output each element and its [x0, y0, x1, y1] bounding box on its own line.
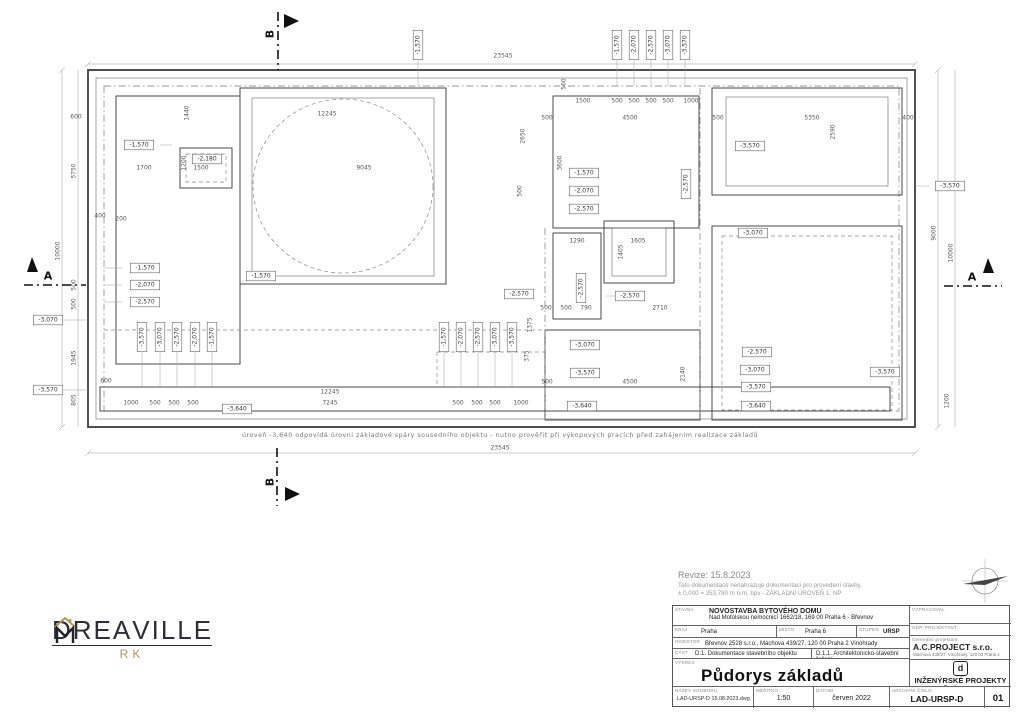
title-block-archivni-cislo: ARCHIVNÍ ČÍSLO LAD-URSP-D	[889, 686, 984, 708]
elevation-label: -3,570	[137, 322, 147, 351]
svg-text:-2,180: -2,180	[197, 156, 217, 163]
logo-text-right: VILLE	[132, 617, 213, 643]
nazev-souboru-label: NÁZEV SOUBORU	[675, 688, 717, 693]
section-label-b: B	[264, 30, 277, 38]
svg-text:-2,070: -2,070	[192, 327, 199, 347]
svg-text:1375: 1375	[527, 317, 534, 332]
title-block-nazev-souboru: NÁZEV SOUBORU LAD-URSP-D 15.08.2023.dwg	[673, 686, 753, 708]
svg-text:-3,070: -3,070	[745, 367, 765, 374]
elevation-label: -3,570	[570, 368, 599, 378]
svg-text:3600: 3600	[557, 155, 564, 170]
svg-text:500: 500	[611, 98, 623, 105]
eng-company-logo: d	[953, 661, 968, 676]
dimension-label: 200	[115, 216, 127, 223]
dimension-label: 500	[645, 98, 657, 105]
svg-text:-3,640: -3,640	[746, 403, 766, 410]
dimension-label: 790	[580, 305, 592, 312]
svg-text:500: 500	[489, 400, 501, 407]
svg-text:-3,570: -3,570	[575, 370, 595, 377]
svg-text:4500: 4500	[622, 379, 637, 386]
svg-text:400: 400	[902, 115, 914, 122]
section-marker-b-bottom: B	[264, 448, 301, 506]
elevation-label: -3,640	[567, 401, 596, 411]
section-label-b: B	[264, 478, 277, 486]
gen-projektant-name: A.C.PROJECT s.r.o.	[913, 642, 1011, 652]
svg-text:500: 500	[471, 400, 483, 407]
svg-text:-3,070: -3,070	[575, 342, 595, 349]
svg-text:9045: 9045	[356, 165, 371, 172]
dimension-label: 600	[70, 114, 82, 121]
logo-divider	[52, 645, 212, 646]
dimension-label: 500	[541, 379, 553, 386]
svg-text:-2,570: -2,570	[683, 174, 690, 194]
svg-text:1500: 1500	[193, 165, 208, 172]
svg-text:-1,570: -1,570	[574, 170, 594, 177]
stavba-label: STAVBA	[675, 607, 694, 612]
svg-text:1945: 1945	[71, 350, 78, 365]
svg-text:600: 600	[70, 114, 82, 121]
svg-text:2650: 2650	[520, 128, 527, 143]
svg-text:-1,570: -1,570	[209, 327, 216, 347]
vypracoval-label: VYPRACOVAL	[912, 607, 945, 612]
svg-text:23545: 23545	[490, 445, 509, 452]
cast-label: ČÁST	[675, 650, 688, 655]
dimension-label: 9045	[356, 165, 371, 172]
elevation-label: -2,570	[681, 169, 691, 198]
title-block: STAVBA NOVOSTAVBA BYTOVÉHO DOMU Nad Moto…	[672, 605, 1010, 707]
svg-text:12245: 12245	[320, 389, 339, 396]
stupen-label: STUPEŇ	[859, 627, 879, 632]
elevation-label: -3,640	[222, 404, 251, 414]
dimension-label: 1000	[683, 98, 698, 105]
svg-text:1000: 1000	[683, 98, 698, 105]
svg-text:-3,070: -3,070	[492, 327, 499, 347]
svg-text:500: 500	[540, 305, 552, 312]
title-block-vypracoval: VYPRACOVAL	[909, 606, 1011, 623]
elevation-label: -1,570	[246, 271, 275, 281]
svg-text:2140: 2140	[680, 366, 687, 381]
title-block-cast: ČÁST D.1. Dokumentace stavebního objektu	[673, 648, 811, 658]
elevation-label: -1,570	[439, 322, 449, 351]
foundation-note: úroveň -3,640 odpovídá úrovni základové …	[242, 431, 758, 439]
investor-value: Břevnov 2528 s.r.o., Máchova 439/27, 120…	[705, 641, 877, 647]
elevation-label: -2,570	[130, 297, 159, 307]
dimension-label: 500	[662, 98, 674, 105]
svg-text:805: 805	[71, 394, 78, 406]
nazev-souboru-value: LAD-URSP-D 15.08.2023.dwg	[677, 696, 753, 702]
elevation-label: -2,070	[190, 322, 200, 351]
elevation-label: -2,570	[646, 30, 656, 59]
svg-text:-1,570: -1,570	[441, 327, 448, 347]
svg-text:375: 375	[524, 350, 531, 362]
dimension-label: 500	[540, 305, 552, 312]
elevation-label: -3,070	[155, 322, 165, 351]
svg-text:4500: 4500	[622, 115, 637, 122]
svg-text:-2,570: -2,570	[648, 35, 655, 55]
list-number: 01	[985, 693, 1011, 704]
dimension-label: 3600	[557, 155, 564, 170]
dimension-label: 500	[628, 98, 640, 105]
svg-text:-3,070: -3,070	[38, 317, 58, 324]
svg-text:-1,570: -1,570	[251, 273, 271, 280]
cast-value-2: D.1.1. Architektonicko-stavební řešení	[816, 651, 909, 658]
svg-text:500: 500	[645, 98, 657, 105]
stavba-value: NOVOSTAVBA BYTOVÉHO DOMU	[709, 608, 909, 615]
svg-text:-3,570: -3,570	[38, 387, 58, 394]
svg-text:12245: 12245	[317, 111, 336, 118]
logo-house-m-icon	[53, 617, 77, 643]
svg-text:-2,570: -2,570	[574, 206, 594, 213]
drawing-sheet: B B A A úroveň -3,640 odpovídá úrovni zá…	[0, 0, 1024, 724]
elevation-label: -2,070	[629, 30, 639, 59]
svg-text:500: 500	[712, 115, 724, 122]
elevation-label: -3,570	[741, 382, 770, 392]
svg-text:1440: 1440	[184, 105, 191, 120]
vykres-label: VÝKRES	[675, 660, 695, 665]
svg-text:-2,570: -2,570	[620, 293, 640, 300]
elevation-label: -3,640	[741, 401, 770, 411]
dimension-label: 1605	[630, 238, 645, 245]
revision-date: Revize: 15.8.2023	[678, 570, 1008, 580]
svg-text:-3,570: -3,570	[940, 183, 960, 190]
dimension-label: 600	[100, 378, 112, 385]
svg-text:-3,570: -3,570	[740, 143, 760, 150]
stavba-address: Nad Motolskou nemocnicí 1662/18, 169 00 …	[709, 615, 909, 621]
elevation-label: -2,570	[576, 273, 586, 302]
svg-text:23545: 23545	[493, 53, 512, 60]
svg-text:-1,570: -1,570	[135, 265, 155, 272]
section-marker-b-top: B	[264, 12, 300, 70]
title-block-vykres: VÝKRES Půdorys základů	[673, 658, 909, 686]
elevation-label: -2,070	[130, 280, 159, 290]
dimension-label: 2140	[680, 366, 687, 381]
dimension-label: 2710	[652, 305, 667, 312]
dimension-label: 500	[452, 400, 464, 407]
dimension-label: 1000	[123, 400, 138, 407]
svg-text:5750: 5750	[71, 163, 78, 178]
section-label-a: A	[968, 271, 977, 284]
svg-text:-2,070: -2,070	[458, 327, 465, 347]
svg-text:-3,070: -3,070	[665, 35, 672, 55]
dimension-label: 7245	[322, 400, 337, 407]
elevation-label: -2,180	[192, 154, 221, 164]
elevation-label: -1,570	[207, 322, 217, 351]
dimension-label: 2650	[520, 128, 527, 143]
dimension-label: 9000	[931, 225, 938, 240]
dimension-label: 12245	[320, 389, 339, 396]
svg-text:200: 200	[115, 216, 127, 223]
svg-text:500: 500	[517, 185, 524, 197]
svg-text:10000: 10000	[948, 243, 955, 262]
elevation-label: -3,570	[735, 141, 764, 151]
svg-text:-3,570: -3,570	[875, 369, 895, 376]
svg-text:500: 500	[662, 98, 674, 105]
title-block-investor: INVESTOR Břevnov 2528 s.r.o., Máchova 43…	[673, 637, 909, 648]
interior-walls	[100, 88, 902, 420]
svg-text:500: 500	[628, 98, 640, 105]
svg-text:-2,070: -2,070	[574, 188, 594, 195]
title-block-eng-company: d INŽENÝRSKÉ PROJEKTY Praha s.r.o sídlo …	[909, 659, 1011, 686]
svg-text:1405: 1405	[618, 244, 625, 259]
svg-text:1000: 1000	[513, 400, 528, 407]
dimension-label: 12245	[317, 111, 336, 118]
dimension-label: 500	[471, 400, 483, 407]
svg-text:-2,570: -2,570	[174, 327, 181, 347]
dimension-label: 5750	[71, 163, 78, 178]
elevation-label: -3,070	[570, 340, 599, 350]
svg-text:-2,570: -2,570	[475, 327, 482, 347]
dimension-label: 1000	[513, 400, 528, 407]
svg-text:500: 500	[168, 400, 180, 407]
svg-text:-3,570: -3,570	[682, 35, 689, 55]
svg-text:400: 400	[94, 213, 106, 220]
dimension-label: 1375	[527, 317, 534, 332]
dimension-label: 500	[541, 115, 553, 122]
svg-text:-2,570: -2,570	[135, 299, 155, 306]
elevation-label: -3,070	[490, 322, 500, 351]
svg-text:500: 500	[452, 400, 464, 407]
elevation-label: -3,570	[680, 30, 690, 59]
datum-label: DATUM	[816, 688, 833, 693]
elevation-label: -1,570	[124, 140, 153, 150]
dreamville-logo: DREAVILLE RK	[52, 617, 212, 661]
revision-block: Revize: 15.8.2023 Tato dokumentace nenah…	[678, 570, 1008, 599]
svg-text:1000: 1000	[123, 400, 138, 407]
section-label-a: A	[44, 270, 53, 283]
title-block-datum: DATUM červen 2022	[813, 686, 889, 708]
svg-text:9000: 9000	[931, 225, 938, 240]
dimension-label: 500	[71, 298, 78, 310]
title-block-gen-projektant: Generální projektant A.C.PROJECT s.r.o. …	[909, 635, 1011, 659]
svg-text:1200: 1200	[181, 155, 188, 170]
elevation-label: -3,570	[33, 385, 62, 395]
elevation-label: -3,570	[870, 367, 899, 377]
svg-text:500: 500	[149, 400, 161, 407]
dimension-label: 400	[94, 213, 106, 220]
dimension-label: 1405	[618, 244, 625, 259]
svg-text:1500: 1500	[575, 98, 590, 105]
dimension-label: 4500	[622, 115, 637, 122]
elevation-label: -2,570	[473, 322, 483, 351]
archivni-cislo-label: ARCHIVNÍ ČÍSLO	[892, 688, 932, 693]
svg-text:560: 560	[561, 78, 568, 90]
elevation-label: -2,570	[569, 204, 598, 214]
elevation-label: -3,070	[740, 365, 769, 375]
svg-text:5350: 5350	[804, 115, 819, 122]
svg-text:500: 500	[560, 305, 572, 312]
svg-text:-2,570: -2,570	[578, 278, 585, 298]
svg-text:-2,570: -2,570	[509, 291, 529, 298]
svg-text:790: 790	[580, 305, 592, 312]
svg-text:-3,640: -3,640	[572, 403, 592, 410]
svg-text:-3,570: -3,570	[509, 327, 516, 347]
dimension-label: 5350	[804, 115, 819, 122]
svg-text:1700: 1700	[136, 165, 151, 172]
dimension-label: 10000	[55, 241, 62, 260]
dimension-label: 500	[149, 400, 161, 407]
svg-text:-1,570: -1,570	[129, 142, 149, 149]
archivni-cislo-value: LAD-URSP-D	[890, 694, 984, 704]
svg-text:-2,070: -2,070	[631, 35, 638, 55]
dimension-label: 1945	[71, 350, 78, 365]
svg-text:-2,570: -2,570	[747, 349, 767, 356]
elevation-label: -1,570	[612, 30, 622, 59]
dimension-label: 500	[560, 305, 572, 312]
dimension-label: 375	[524, 350, 531, 362]
svg-text:500: 500	[541, 115, 553, 122]
svg-text:-3,640: -3,640	[227, 406, 247, 413]
revision-note-2: ± 0,000 = 353,780 m n.m. bpv - ZÁKLADNÍ …	[678, 590, 1008, 598]
elevation-label: -3,570	[935, 181, 964, 191]
elevation-label: -2,070	[456, 322, 466, 351]
svg-text:2710: 2710	[652, 305, 667, 312]
revision-note-1: Tato dokumentace nenahrazuje dokumentaci…	[678, 582, 1008, 590]
svg-text:500: 500	[71, 279, 78, 291]
dimension-label: 1440	[184, 105, 191, 120]
cast-value: D.1. Dokumentace stavebního objektu	[695, 651, 797, 657]
dimension-label: 500	[611, 98, 623, 105]
investor-label: INVESTOR	[675, 639, 700, 644]
dimension-label: 1500	[575, 98, 590, 105]
meritko-value: 1:50	[754, 695, 813, 702]
svg-text:500: 500	[71, 298, 78, 310]
dimension-label: 500	[168, 400, 180, 407]
dimension-lines	[59, 61, 955, 456]
svg-text:7245: 7245	[322, 400, 337, 407]
title-block-misto: MÍSTO Praha 6	[776, 625, 856, 637]
svg-text:-2,070: -2,070	[135, 282, 155, 289]
dimension-label: 23545	[490, 445, 509, 452]
elevation-label: -1,570	[130, 263, 159, 273]
misto-value: Praha 6	[805, 629, 826, 635]
gen-projektant-label: Generální projektant	[912, 637, 958, 642]
svg-text:-3,570: -3,570	[139, 327, 146, 347]
elevation-label: -3,070	[33, 315, 62, 325]
elevation-label: -1,570	[569, 168, 598, 178]
title-block-kraj: KRAJ Praha	[673, 625, 776, 637]
svg-text:-1,570: -1,570	[415, 35, 422, 55]
gen-projektant-address: Máchova 439/27, Vinohrady, 120 00 Praha …	[913, 652, 1011, 657]
dimension-label: 1200	[944, 393, 951, 408]
datum-value: červen 2022	[814, 695, 889, 702]
elevation-label: -2,570	[742, 347, 771, 357]
dimension-label: 500	[489, 400, 501, 407]
eng-company-name: INŽENÝRSKÉ PROJEKTY	[910, 677, 1011, 685]
elevation-label: -3,070	[663, 30, 673, 59]
dimension-label: 23545	[493, 53, 512, 60]
dimension-label: 500	[712, 115, 724, 122]
kraj-label: KRAJ	[675, 627, 688, 632]
svg-text:1200: 1200	[944, 393, 951, 408]
elevation-label: -2,570	[172, 322, 182, 351]
title-block-meritko: MĚŘÍTKO 1:50	[753, 686, 813, 708]
dimension-label: 10000	[948, 243, 955, 262]
svg-text:-1,570: -1,570	[614, 35, 621, 55]
svg-text:-3,070: -3,070	[157, 327, 164, 347]
dimension-label: 560	[561, 78, 568, 90]
svg-text:500: 500	[187, 400, 199, 407]
title-block-stavba: STAVBA NOVOSTAVBA BYTOVÉHO DOMU Nad Moto…	[673, 606, 909, 625]
svg-text:-3,570: -3,570	[746, 384, 766, 391]
dimension-label: 1500	[193, 165, 208, 172]
dimension-label: 1290	[569, 238, 584, 245]
title-block-stupen: STUPEŇ URSP	[856, 625, 909, 637]
svg-text:600: 600	[100, 378, 112, 385]
dimension-label: 805	[71, 394, 78, 406]
drawing-title: Půdorys základů	[701, 666, 909, 686]
dimension-label: 500	[517, 185, 524, 197]
lift-pit	[604, 221, 674, 283]
dimension-label: 500	[187, 400, 199, 407]
dimension-label: 4500	[622, 379, 637, 386]
dimension-label: 1700	[136, 165, 151, 172]
dimension-label: 500	[71, 279, 78, 291]
svg-text:500: 500	[541, 379, 553, 386]
dimension-label: 1200	[181, 155, 188, 170]
elevation-label: -2,570	[504, 289, 533, 299]
logo-subtext: RK	[52, 647, 212, 661]
circular-foundation-pit	[253, 99, 433, 273]
svg-text:1605: 1605	[630, 238, 645, 245]
meritko-label: MĚŘÍTKO	[756, 688, 778, 693]
stupen-value: URSP	[883, 629, 900, 635]
elevation-label: -3,070	[738, 228, 767, 238]
misto-label: MÍSTO	[779, 627, 794, 632]
svg-text:-3,070: -3,070	[743, 230, 763, 237]
elevation-label: -2,570	[615, 291, 644, 301]
dimension-label: 2590	[830, 124, 837, 139]
title-block-odp-projektant: ODP. PROJEKTANT	[909, 623, 1011, 635]
dimension-label: 400	[902, 115, 914, 122]
svg-text:2590: 2590	[830, 124, 837, 139]
elevation-label: -1,570	[413, 30, 423, 59]
svg-text:1290: 1290	[569, 238, 584, 245]
svg-text:10000: 10000	[55, 241, 62, 260]
elevation-label: -3,570	[507, 322, 517, 351]
odp-projektant-label: ODP. PROJEKTANT	[912, 625, 957, 630]
elevation-label: -2,070	[569, 186, 598, 196]
title-block-cast2: D.1.1. Architektonicko-stavební řešení	[811, 648, 909, 658]
title-block-list-number: 01	[984, 686, 1011, 708]
kraj-value: Praha	[701, 629, 717, 635]
